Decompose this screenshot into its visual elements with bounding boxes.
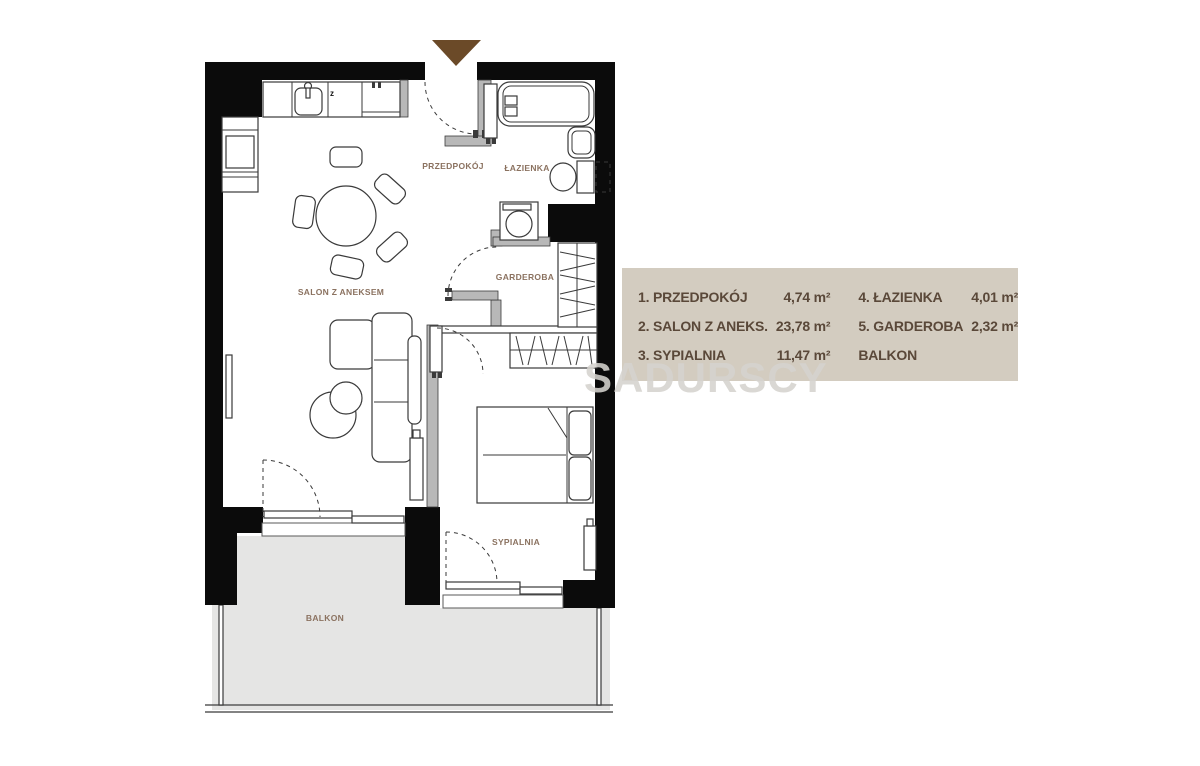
legend-item: 5. GARDEROBA 2,32 m² xyxy=(858,312,1018,341)
dining-table xyxy=(292,147,410,280)
salon-balcony-door xyxy=(264,511,352,518)
legend-label: 5. GARDEROBA xyxy=(858,318,963,334)
legend-label: 2. SALON Z ANEKS. xyxy=(638,318,768,334)
kitchen-tall-cabinet xyxy=(222,117,258,192)
legend-item: 4. ŁAZIENKA 4,01 m² xyxy=(858,283,1018,312)
legend-label: BALKON xyxy=(858,347,917,363)
bathroom-door-leaf xyxy=(484,84,497,138)
bedroom-door-leaf xyxy=(430,326,442,372)
legend-label: 1. PRZEDPOKÓJ xyxy=(638,289,747,305)
washing-machine xyxy=(500,202,538,240)
legend-label: 4. ŁAZIENKA xyxy=(858,289,942,305)
sofa-chaise xyxy=(330,320,375,369)
radiator xyxy=(584,519,596,570)
chair xyxy=(292,195,316,229)
balcony-post xyxy=(597,608,601,705)
legend-area: 11,47 m² xyxy=(777,347,831,363)
salon-balcony-door-arc xyxy=(263,460,320,517)
radiator xyxy=(410,430,423,500)
stove-mark: z xyxy=(330,89,334,98)
chair xyxy=(372,172,408,207)
radiator xyxy=(226,355,232,418)
legend-area: 23,78 m² xyxy=(776,318,830,334)
pillow xyxy=(569,411,591,455)
floorplan-page: z xyxy=(0,0,1200,766)
entrance-arrow-icon xyxy=(432,40,481,66)
pillow xyxy=(569,457,591,500)
legend-area: 2,32 m² xyxy=(971,318,1018,334)
wardrobe-bedroom xyxy=(510,333,597,368)
fridge xyxy=(226,136,254,168)
legend-item: 1. PRZEDPOKÓJ 4,74 m² xyxy=(638,283,830,312)
room-label-balkon: BALKON xyxy=(306,613,344,623)
legend-area: 4,01 m² xyxy=(971,289,1018,305)
legend-area: 4,74 m² xyxy=(783,289,830,305)
chair xyxy=(329,254,364,280)
garderoba-door-leaf xyxy=(452,291,498,300)
wardrobe-garderoba xyxy=(558,243,597,327)
garderoba-door-arc xyxy=(448,247,497,296)
balcony-post xyxy=(219,605,223,705)
washbasin xyxy=(568,127,595,158)
armchair xyxy=(310,382,362,438)
room-label-lazienka: ŁAZIENKA xyxy=(504,163,549,173)
bed xyxy=(477,407,593,503)
chair xyxy=(374,230,410,265)
room-label-przedpokoj: PRZEDPOKÓJ xyxy=(422,160,484,171)
room-label-sypialnia: SYPIALNIA xyxy=(492,537,540,547)
floor-plan: z xyxy=(0,0,1200,766)
legend-label: 3. SYPIALNIA xyxy=(638,347,726,363)
area-legend: 1. PRZEDPOKÓJ 4,74 m² 2. SALON Z ANEKS. … xyxy=(622,268,1018,381)
entrance-door-arc xyxy=(425,82,477,134)
room-label-garderoba: GARDEROBA xyxy=(496,272,554,282)
legend-item: BALKON xyxy=(858,340,1018,369)
legend-item: 2. SALON Z ANEKS. 23,78 m² xyxy=(638,312,830,341)
legend-item: 3. SYPIALNIA 11,47 m² xyxy=(638,340,830,369)
bedroom-balcony-door xyxy=(446,582,520,589)
sofa-backrest xyxy=(408,336,421,424)
room-label-salon: SALON Z ANEKSEM xyxy=(298,287,384,297)
bedroom-door-arc xyxy=(437,328,483,374)
chair xyxy=(330,147,362,167)
bathtub xyxy=(498,82,594,126)
